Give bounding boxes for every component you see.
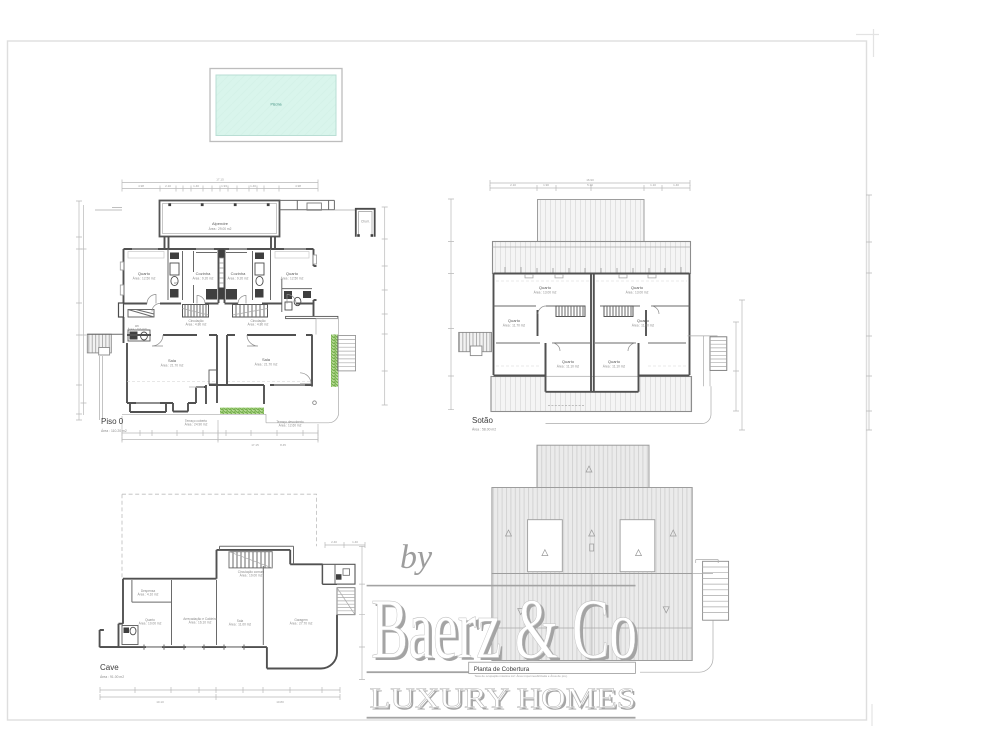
- svg-text:1.40: 1.40: [193, 184, 199, 188]
- svg-text:17.15: 17.15: [216, 178, 224, 182]
- svg-text:Quarto: Quarto: [138, 271, 151, 276]
- svg-text:16.90: 16.90: [586, 178, 594, 182]
- svg-text:1.90: 1.90: [543, 183, 549, 187]
- svg-text:1.93: 1.93: [221, 184, 227, 188]
- svg-text:Área : 12.50 m2: Área : 12.50 m2: [281, 277, 304, 281]
- svg-text:Área : 24.90 m2: Área : 24.90 m2: [185, 423, 208, 427]
- svg-text:2.40: 2.40: [331, 540, 337, 544]
- svg-text:Área : 9.20 m2: Área : 9.20 m2: [228, 277, 249, 281]
- svg-text:Área : 91.00 m2: Área : 91.00 m2: [100, 675, 124, 679]
- svg-text:Área : 58.00 m2: Área : 58.00 m2: [472, 428, 496, 432]
- svg-text:Área : 4.80 m2: Área : 4.80 m2: [248, 323, 269, 327]
- svg-text:Área : 4.10 m2: Área : 4.10 m2: [138, 593, 159, 597]
- svg-text:Cave: Cave: [100, 663, 119, 672]
- svg-text:17.15: 17.15: [251, 443, 259, 447]
- svg-text:Área : 13.00 m2: Área : 13.00 m2: [534, 291, 557, 295]
- svg-text:Piso 0: Piso 0: [101, 417, 124, 426]
- svg-text:by: by: [400, 539, 433, 576]
- svg-text:Área : 11.10 m2: Área : 11.10 m2: [557, 365, 580, 369]
- svg-text:wc: wc: [174, 281, 178, 285]
- svg-text:Quarto: Quarto: [539, 285, 552, 290]
- svg-text:Churr.: Churr.: [361, 220, 370, 224]
- svg-text:Área : 2.0 m2: Área : 2.0 m2: [127, 327, 146, 331]
- svg-text:Área : 16.10 m2: Área : 16.10 m2: [189, 621, 212, 625]
- svg-text:Área : 21.70 m2: Área : 21.70 m2: [161, 364, 184, 368]
- svg-text:2.10: 2.10: [510, 183, 516, 187]
- svg-text:1.40: 1.40: [352, 540, 358, 544]
- svg-text:Sala: Sala: [168, 358, 177, 363]
- svg-text:Piscina: Piscina: [271, 103, 282, 107]
- svg-text:1.40: 1.40: [250, 184, 256, 188]
- svg-text:Área : 27.70 m2: Área : 27.70 m2: [290, 622, 313, 626]
- svg-text:10.10: 10.10: [156, 700, 164, 704]
- svg-text:1.10: 1.10: [650, 183, 656, 187]
- svg-text:Quarto: Quarto: [562, 359, 575, 364]
- svg-text:2.10: 2.10: [165, 184, 171, 188]
- svg-text:LUXURY HOMES: LUXURY HOMES: [370, 684, 636, 715]
- svg-text:8.45: 8.45: [280, 443, 286, 447]
- svg-text:5.30: 5.30: [587, 183, 593, 187]
- svg-text:1.40: 1.40: [673, 183, 679, 187]
- svg-text:4.98: 4.98: [138, 184, 144, 188]
- svg-text:Área : 11.10 m2: Área : 11.10 m2: [603, 365, 626, 369]
- svg-text:Sala: Sala: [262, 357, 271, 362]
- svg-text:Cozinha: Cozinha: [231, 271, 246, 276]
- svg-text:Taxa de ocupação máxima m2: Ár: Taxa de ocupação máxima m2: Área imperme…: [475, 674, 568, 678]
- svg-text:Área : 19.00 m2: Área : 19.00 m2: [240, 574, 263, 578]
- svg-text:Alpendre: Alpendre: [212, 221, 229, 226]
- svg-text:Planta de Cobertura: Planta de Cobertura: [474, 666, 530, 673]
- svg-text:Área : 29.00 m2: Área : 29.00 m2: [209, 227, 232, 231]
- svg-text:4.98: 4.98: [295, 184, 301, 188]
- svg-text:Área : 12.50 m2: Área : 12.50 m2: [133, 277, 156, 281]
- svg-text:Área : 9.20 m2: Área : 9.20 m2: [193, 277, 214, 281]
- svg-text:Sotão: Sotão: [472, 416, 493, 425]
- svg-text:Área : 110.20 m2: Área : 110.20 m2: [101, 429, 127, 433]
- svg-text:Área : 4.80 m2: Área : 4.80 m2: [186, 323, 207, 327]
- svg-text:Quarto: Quarto: [608, 359, 621, 364]
- svg-text:Quarto: Quarto: [508, 318, 521, 323]
- svg-text:Área : 21.70 m2: Área : 21.70 m2: [255, 363, 278, 367]
- svg-text:Área : 11.70 m2: Área : 11.70 m2: [503, 324, 526, 328]
- svg-text:Quarto: Quarto: [637, 318, 650, 323]
- svg-text:Área : 10.00 m2: Área : 10.00 m2: [139, 622, 162, 626]
- svg-text:Área : 11.90 m2: Área : 11.90 m2: [632, 324, 655, 328]
- svg-text:Área : 13.00 m2: Área : 13.00 m2: [626, 291, 649, 295]
- svg-text:10.80: 10.80: [276, 700, 284, 704]
- svg-text:Área : 11.00 m2: Área : 11.00 m2: [229, 623, 252, 627]
- svg-text:Cozinha: Cozinha: [196, 271, 211, 276]
- svg-text:Quarto: Quarto: [631, 285, 644, 290]
- svg-text:Quarto: Quarto: [286, 271, 299, 276]
- svg-text:Área : 12.60 m2: Área : 12.60 m2: [279, 424, 302, 428]
